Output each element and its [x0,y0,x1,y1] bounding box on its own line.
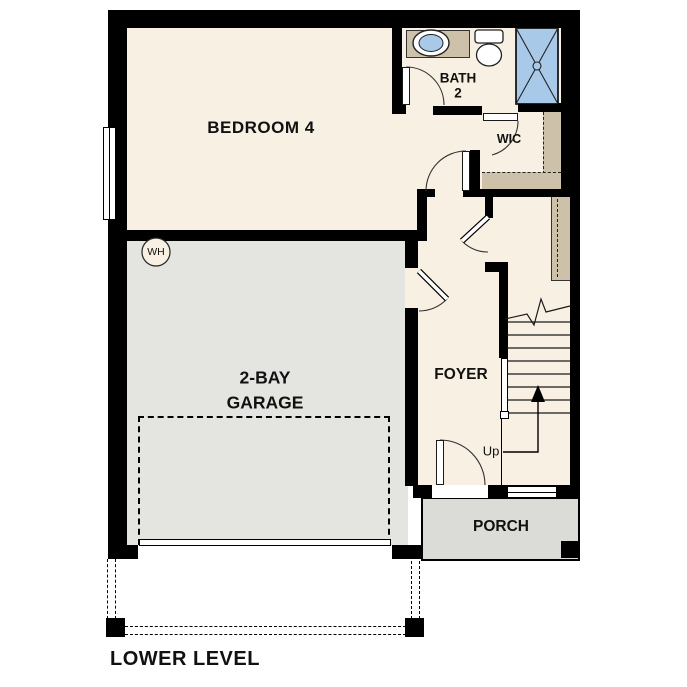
understair-closet-shelf [551,197,570,281]
window-mullion [109,128,110,219]
wall-bath-south [433,106,482,115]
bedroom-suite-doorway [435,189,463,197]
stair-open-edge-line [501,419,502,485]
front-doorway [432,485,488,498]
bath-doorway [406,105,433,115]
bath-vanity-counter [406,30,470,58]
wall-bedroom-garage [108,230,427,241]
wall-bath-south-stub [392,105,406,114]
room-label-porch: PORCH [473,518,529,536]
driveway-dashed-line [125,634,406,635]
garage-door-opening [138,545,392,559]
bedroom-suite-door-leaf [462,151,470,191]
driveway-dashed-line [419,561,420,619]
water-heater-label: WH [147,246,165,258]
closet-rod-dashed-line [557,199,558,277]
front-window [507,486,557,498]
driveway-dashed-line [125,626,406,627]
plan-title: LOWER LEVEL [110,648,260,671]
room-label-foyer: FOYER [434,366,487,384]
room-label-garage-line1: 2-BAY [240,368,291,389]
room-label-bath-2: 2 [454,86,462,101]
wall-exterior-left [108,10,127,559]
bedroom-window [103,127,116,220]
room-label-wic: WIC [497,132,521,146]
wall-bath-west [392,10,402,112]
wic-door-leaf [483,113,518,121]
front-door-leaf [436,440,444,485]
room-label-bedroom4: BEDROOM 4 [207,118,314,138]
wall-exterior-right-upper [561,10,580,197]
wall-suite-door-stub [470,150,480,197]
room-label-garage-line2: GARAGE [227,393,304,414]
wall-under-shower [518,103,561,112]
driveway-dashed-line [115,559,116,619]
driveway-dashed-line [411,561,412,619]
wall-exterior-right-lower [570,190,580,498]
wall-exterior-top [108,10,580,28]
wall-hall-west [417,189,427,241]
wall-stair-west [499,262,508,358]
stair-closet-doorway [485,218,493,250]
driveway-post-right [405,618,424,637]
stair-handrail [501,358,508,412]
driveway-post-left [106,618,125,637]
floor-plan: BEDROOM 4 BATH 2 WIC 2-BAY GARAGE FOYER … [0,0,687,687]
bath-door-leaf [402,67,410,105]
stairs-up-label: Up [483,444,500,459]
window-mullion [508,492,556,493]
garage-entry-doorway [405,268,418,308]
porch-post [561,541,579,558]
driveway-dashed-line [107,559,108,619]
garage-overhead-door [139,539,391,546]
stair-newel-post [500,411,509,419]
wic-shelf-right [543,112,561,174]
garage-parking-stall-outline [138,416,390,545]
room-label-bath: BATH [440,71,477,86]
